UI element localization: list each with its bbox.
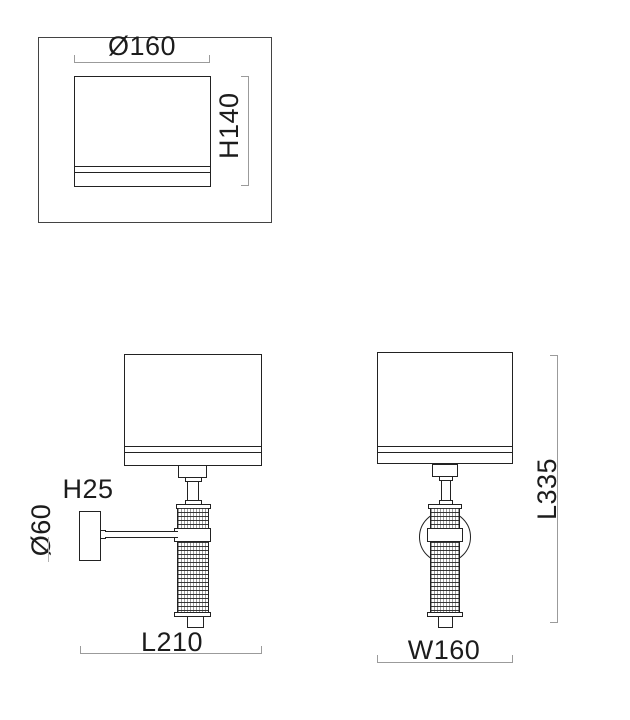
plate-diameter-label: Ø60 <box>27 502 55 558</box>
shade-trim-line <box>377 446 513 447</box>
shade-height-label: H140 <box>215 103 243 159</box>
total-height-label: L335 <box>533 464 561 520</box>
technical-drawing-canvas: Ø160 H140 H25 Ø60 L210 <box>0 0 630 720</box>
depth-label: L210 <box>102 629 242 656</box>
shade-outline-top-view <box>74 76 211 187</box>
mounting-arm <box>105 531 178 538</box>
shade-height-dimension-line <box>248 76 249 186</box>
body-lower-mesh <box>177 542 209 612</box>
shade-trim-line <box>124 452 262 453</box>
shade-trim-line <box>124 446 262 447</box>
width-label: W160 <box>374 637 514 664</box>
wall-plate <box>79 511 101 561</box>
body-foot <box>438 616 453 628</box>
body-upper-mesh <box>177 508 209 528</box>
body-center-ring <box>427 528 463 542</box>
body-upper-mesh <box>430 508 460 528</box>
arm-depth-label: H25 <box>58 476 118 503</box>
shade-diameter-dimension-line <box>74 62 210 63</box>
body-center-ring <box>174 528 211 542</box>
body-lower-mesh <box>430 542 460 612</box>
neck-stem <box>187 481 199 501</box>
lamp-shade <box>377 352 513 464</box>
shade-trim-line <box>377 452 513 453</box>
lamp-shade <box>124 354 262 466</box>
neck-stem <box>441 480 451 501</box>
shade-trim-line <box>74 172 211 173</box>
shade-diameter-label: Ø160 <box>74 33 210 60</box>
plate-diameter-dimension-line <box>48 537 49 562</box>
shade-trim-line <box>74 166 211 167</box>
